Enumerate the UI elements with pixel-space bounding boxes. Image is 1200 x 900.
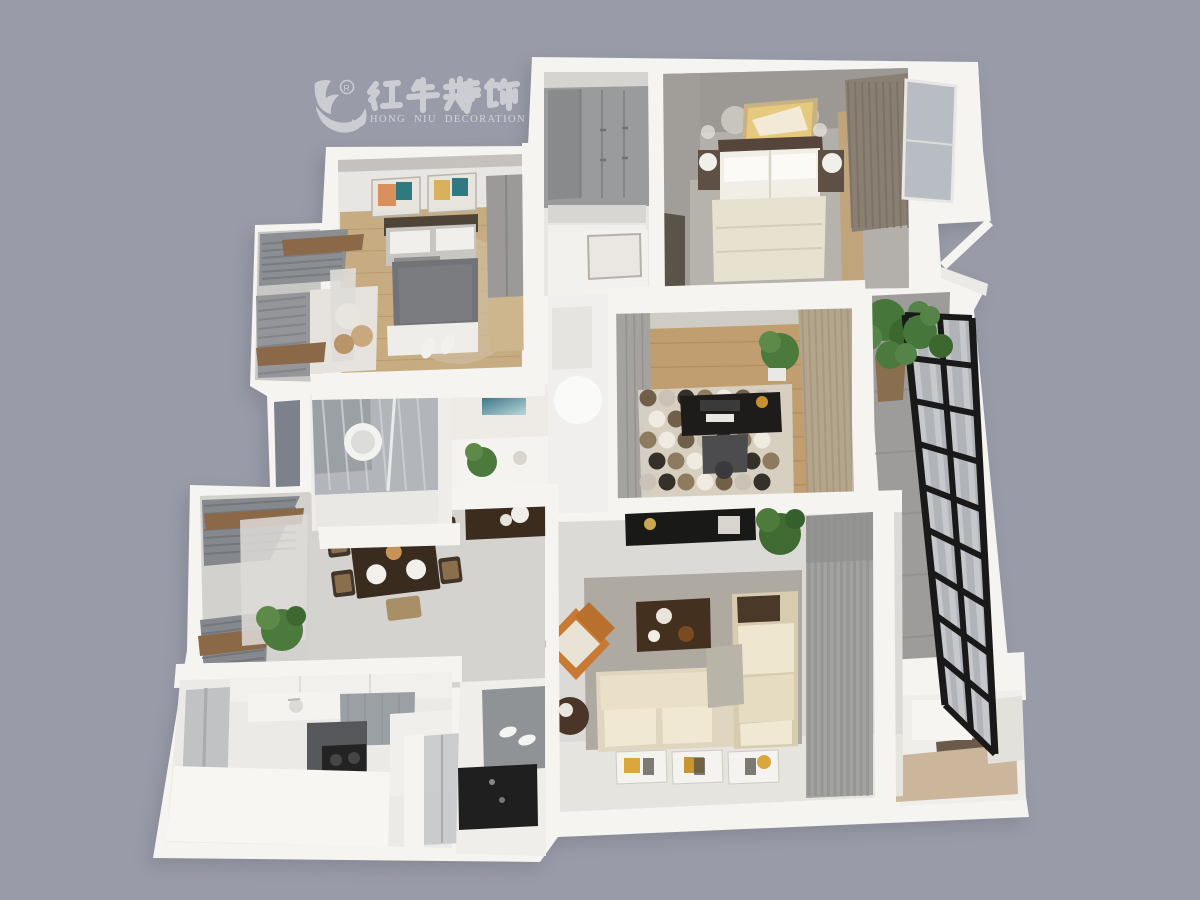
- svg-text:HONG NIU DECORATION: HONG NIU DECORATION: [370, 114, 526, 125]
- svg-text:R: R: [344, 83, 350, 93]
